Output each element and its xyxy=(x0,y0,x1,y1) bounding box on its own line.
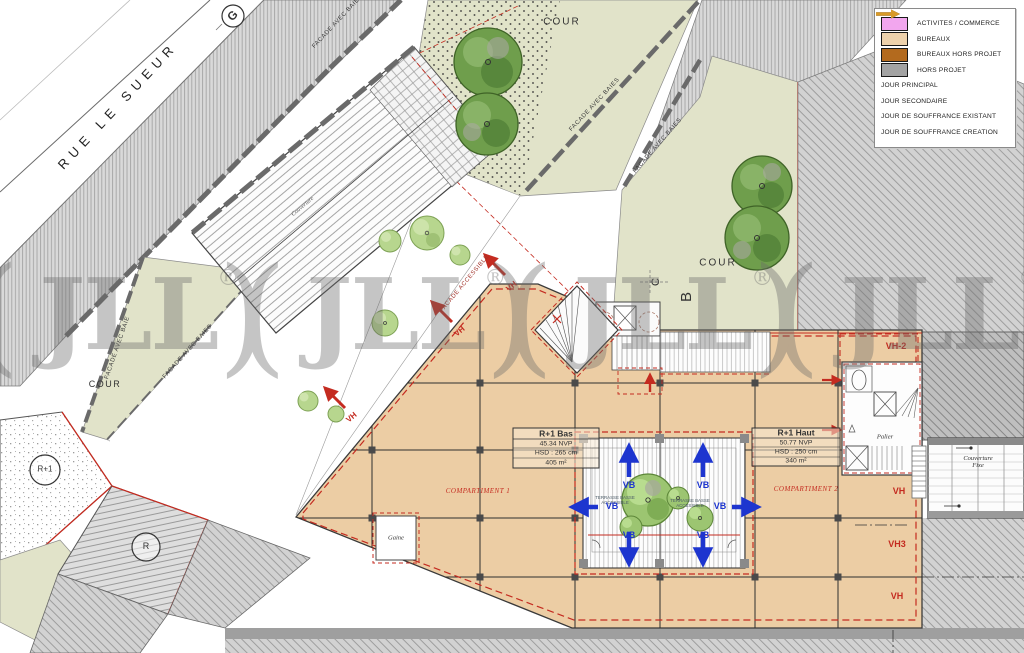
couverture-fixe xyxy=(912,438,1024,518)
legend-row-jour-souffrance-creation: JOUR DE SOUFFRANCE CREATION xyxy=(881,125,1009,141)
vh3-label: VH3 xyxy=(888,540,906,550)
vb-label: VB xyxy=(714,502,727,512)
service-core-right xyxy=(842,362,922,475)
r1-haut-hsd: HSD : 250 cm xyxy=(775,448,817,455)
marker-r: R xyxy=(143,542,150,552)
legend-label: BUREAUX xyxy=(917,36,950,43)
vb-label: VB xyxy=(606,502,619,512)
couverture-fixe-label: Couverture Fixe xyxy=(963,455,992,469)
vh-label: VH xyxy=(893,487,906,497)
plan-canvas xyxy=(0,0,1024,653)
cour-left-label: COUR xyxy=(89,380,122,390)
r1-bas-title: R+1 Bas xyxy=(539,429,573,438)
legend-label: HORS PROJET xyxy=(917,67,966,74)
r1-bas-hsd: HSD : 265 cm xyxy=(535,449,577,456)
orange-arrow-icon xyxy=(875,9,901,19)
marker-b: B xyxy=(679,292,696,302)
couverture-fixe-line2: Fixe xyxy=(972,462,984,469)
couverture-fixe-line1: Couverture xyxy=(963,455,992,462)
hors-projet-swatch xyxy=(881,63,908,77)
vb-label: VB xyxy=(697,481,710,491)
compartiment1-label: COMPARTIMENT 1 xyxy=(446,488,511,496)
bureaux-hors-projet-swatch xyxy=(881,48,908,62)
legend-label: JOUR SECONDAIRE xyxy=(881,98,947,105)
palier-label: Palier xyxy=(877,433,893,440)
r1-haut-area: 340 m² xyxy=(785,457,806,464)
legend-row-jour-souffrance-existant: JOUR DE SOUFFRANCE EXISTANT xyxy=(881,109,1009,125)
legend-label: BUREAUX HORS PROJET xyxy=(917,51,1001,58)
legend-label: JOUR PRINCIPAL xyxy=(881,82,938,89)
compartiment2-label: COMPARTIMENT 2 xyxy=(774,486,839,494)
vh2-label: VH-2 xyxy=(886,342,907,352)
r1-haut-title: R+1 Haut xyxy=(777,428,814,437)
vb-label: VB xyxy=(623,481,636,491)
marker-r1: R+1 xyxy=(38,466,53,475)
r1-bas-nvp: 45.34 NVP xyxy=(540,440,573,447)
vb-label: VB xyxy=(697,531,710,541)
bureaux-swatch xyxy=(881,32,908,46)
floor-plan-page: RUE LE SUEUR G COUR COUR COUR FACADE AVE… xyxy=(0,0,1024,653)
r1-bas-area: 405 m² xyxy=(545,459,566,466)
legend-row-bureaux-hors-projet: BUREAUX HORS PROJET xyxy=(881,47,1009,63)
vb-label: VB xyxy=(623,531,636,541)
legend-label: JOUR DE SOUFFRANCE CREATION xyxy=(881,129,998,136)
terrasse-label: TERRASSE BASSE ACCESSIBLE xyxy=(670,499,710,509)
legend-row-hors-projet: HORS PROJET xyxy=(881,63,1009,79)
legend-label: ACTIVITES / COMMERCE xyxy=(917,20,1000,27)
r1-haut-nvp: 50.77 NVP xyxy=(780,439,813,446)
terrasse-line2: ACCESSIBLE xyxy=(676,503,704,508)
legend-row-bureaux: BUREAUX xyxy=(881,32,1009,48)
legend-label: JOUR DE SOUFFRANCE EXISTANT xyxy=(881,113,996,120)
cour-right-label: COUR xyxy=(699,258,736,269)
legend: ACTIVITES / COMMERCE BUREAUX BUREAUX HOR… xyxy=(874,8,1016,148)
slatted-strip xyxy=(660,332,770,374)
legend-row-jour-principal: JOUR PRINCIPAL xyxy=(881,78,1009,94)
cour-top-label: COUR xyxy=(543,17,580,28)
legend-row-jour-secondaire: JOUR SECONDAIRE xyxy=(881,94,1009,110)
marker-c: C xyxy=(650,278,662,286)
hors-projet-bottom-band xyxy=(225,628,1024,653)
vh-label: VH xyxy=(891,592,904,602)
gaine-label: Gaine xyxy=(388,534,404,541)
